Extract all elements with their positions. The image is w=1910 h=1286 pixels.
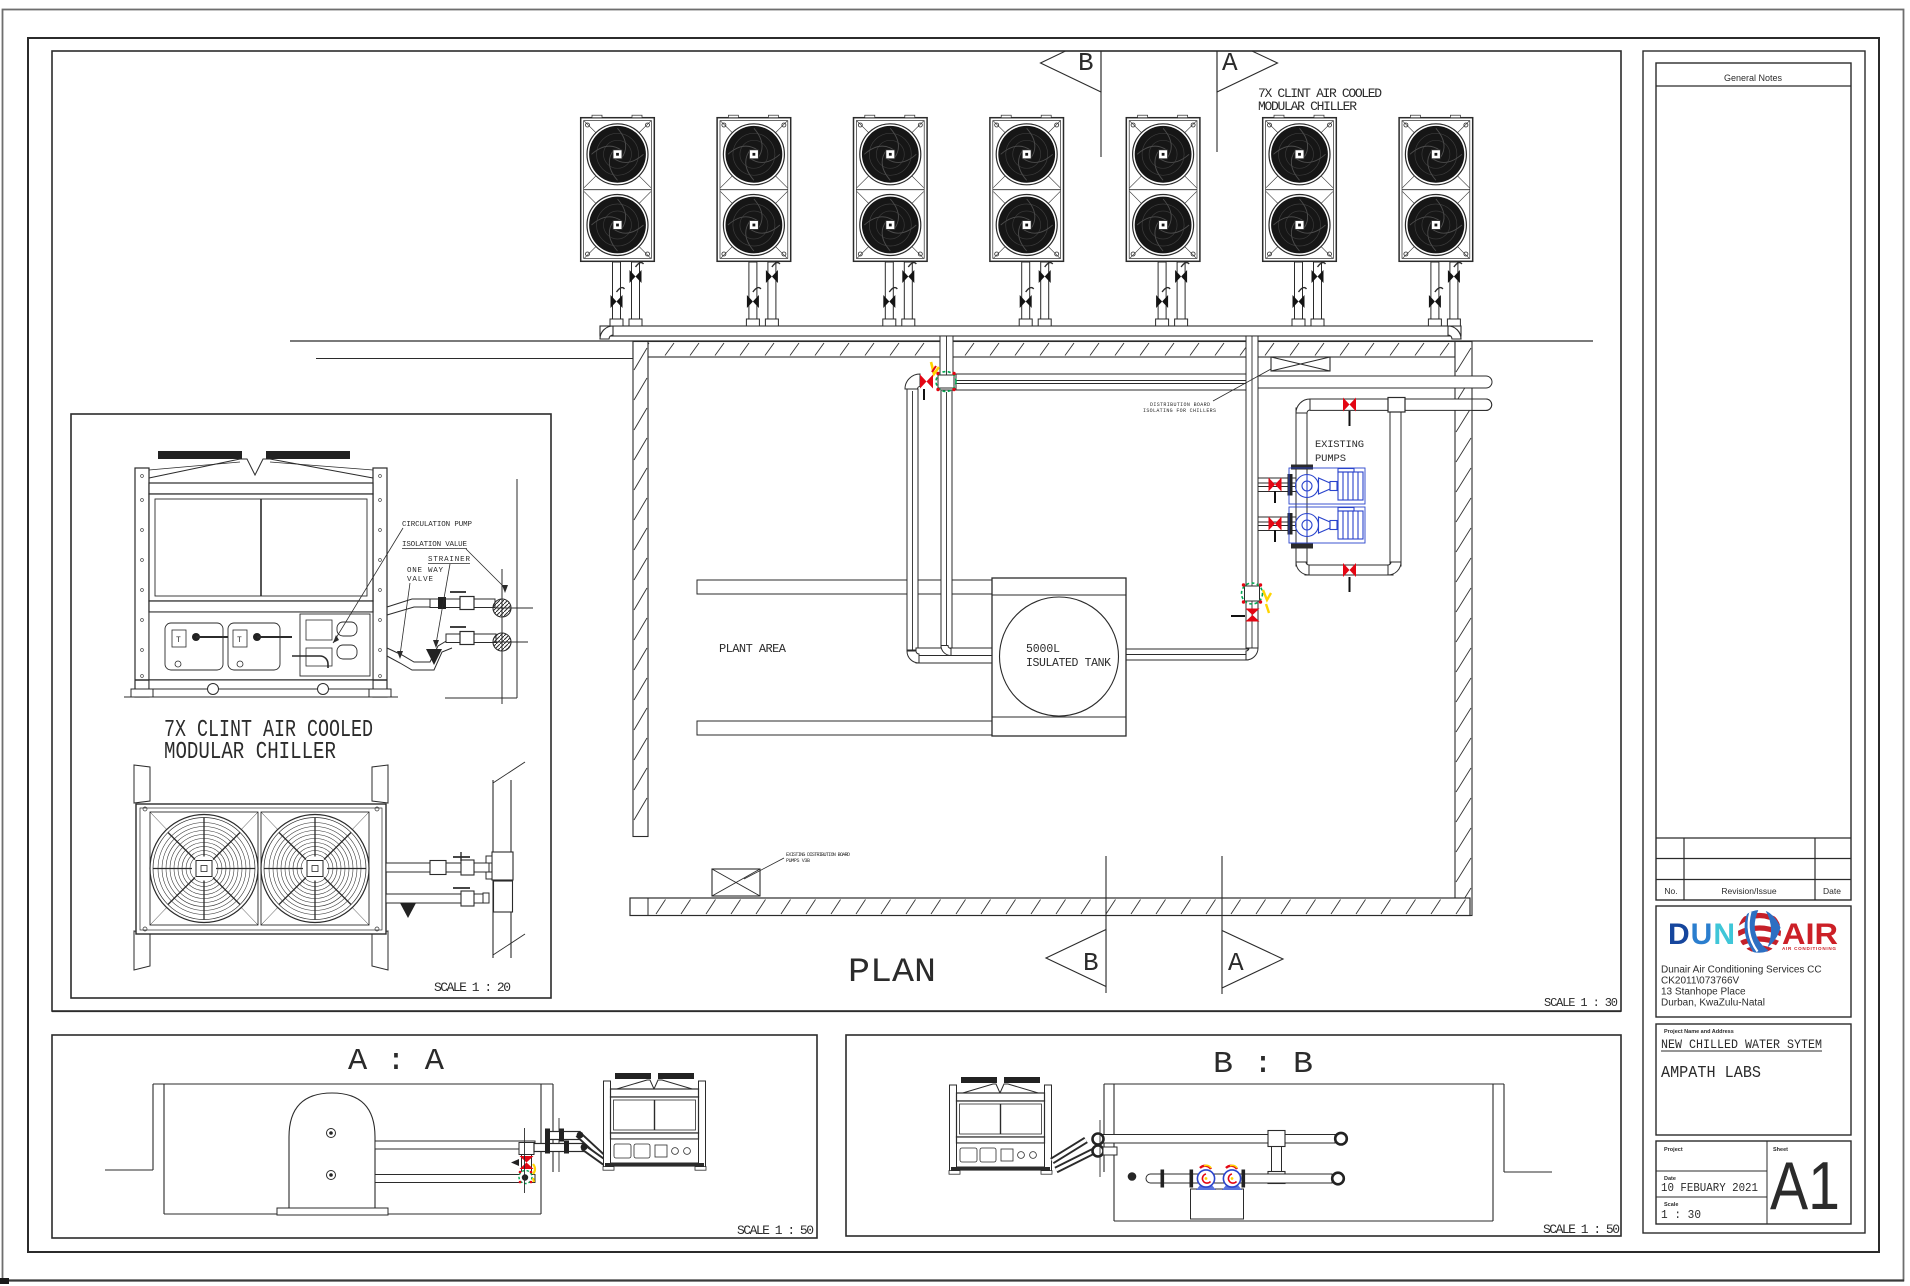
svg-text:SCALE 1 : 50: SCALE 1 : 50 <box>1543 1222 1620 1237</box>
svg-text:PLAN: PLAN <box>848 954 936 992</box>
svg-text:10 FEBUARY 2021: 10 FEBUARY 2021 <box>1661 1181 1758 1195</box>
svg-text:T: T <box>237 636 242 645</box>
svg-text:B : B: B : B <box>1213 1047 1313 1082</box>
svg-text:Revision/Issue: Revision/Issue <box>1721 886 1777 896</box>
svg-text:Durban, KwaZulu-Natal: Durban, KwaZulu-Natal <box>1661 998 1765 1009</box>
svg-text:STRAINER: STRAINER <box>428 556 470 564</box>
svg-text:B: B <box>1078 48 1094 78</box>
svg-text:Dunair Air Conditioning Servic: Dunair Air Conditioning Services CC <box>1661 965 1822 976</box>
svg-text:T: T <box>176 636 181 645</box>
svg-text:ONE WAY: ONE WAY <box>407 567 443 575</box>
svg-text:1 : 30: 1 : 30 <box>1661 1208 1701 1222</box>
svg-text:MODULAR CHILLER: MODULAR CHILLER <box>164 739 336 766</box>
svg-text:DUN: DUN <box>1668 918 1735 951</box>
svg-text:PUMPS: PUMPS <box>1315 453 1346 465</box>
svg-text:No.: No. <box>1664 886 1677 896</box>
svg-text:5000L: 5000L <box>1026 643 1060 656</box>
svg-text:CIRCULATION PUMP: CIRCULATION PUMP <box>402 521 472 529</box>
svg-text:PUMPS V3B: PUMPS V3B <box>786 858 810 864</box>
svg-text:ISOLATING FOR CHILLERS: ISOLATING FOR CHILLERS <box>1143 408 1216 414</box>
svg-text:13 Stanhope Place: 13 Stanhope Place <box>1661 987 1746 998</box>
svg-text:NEW CHILLED WATER SYTEM: NEW CHILLED WATER SYTEM <box>1661 1037 1822 1052</box>
svg-text:A: A <box>1228 948 1244 978</box>
svg-text:EXISTING: EXISTING <box>1315 439 1364 451</box>
svg-text:SCALE 1 : 50: SCALE 1 : 50 <box>737 1223 814 1238</box>
svg-text:A: A <box>1222 48 1238 78</box>
svg-text:General Notes: General Notes <box>1724 73 1783 83</box>
svg-text:ISULATED TANK: ISULATED TANK <box>1026 657 1111 670</box>
svg-text:VALVE: VALVE <box>407 576 433 584</box>
svg-text:AIR CONDITIONING: AIR CONDITIONING <box>1782 946 1836 951</box>
svg-text:Date: Date <box>1823 886 1841 896</box>
svg-text:A : A: A : A <box>348 1044 444 1079</box>
svg-text:Project: Project <box>1664 1147 1683 1153</box>
svg-text:B: B <box>1083 948 1099 978</box>
svg-text:Project Name and Address: Project Name and Address <box>1664 1029 1734 1035</box>
svg-text:PLANT AREA: PLANT AREA <box>719 642 787 656</box>
svg-text:SCALE 1 : 20: SCALE 1 : 20 <box>434 980 511 995</box>
svg-text:MODULAR CHILLER: MODULAR CHILLER <box>1258 99 1357 114</box>
svg-text:AMPATH LABS: AMPATH LABS <box>1661 1063 1761 1082</box>
svg-text:ISOLATION VALUE: ISOLATION VALUE <box>402 541 467 549</box>
svg-text:CK2011\073766V: CK2011\073766V <box>1661 976 1740 987</box>
svg-text:A1: A1 <box>1770 1148 1840 1224</box>
svg-text:SCALE 1 : 30: SCALE 1 : 30 <box>1544 996 1618 1010</box>
